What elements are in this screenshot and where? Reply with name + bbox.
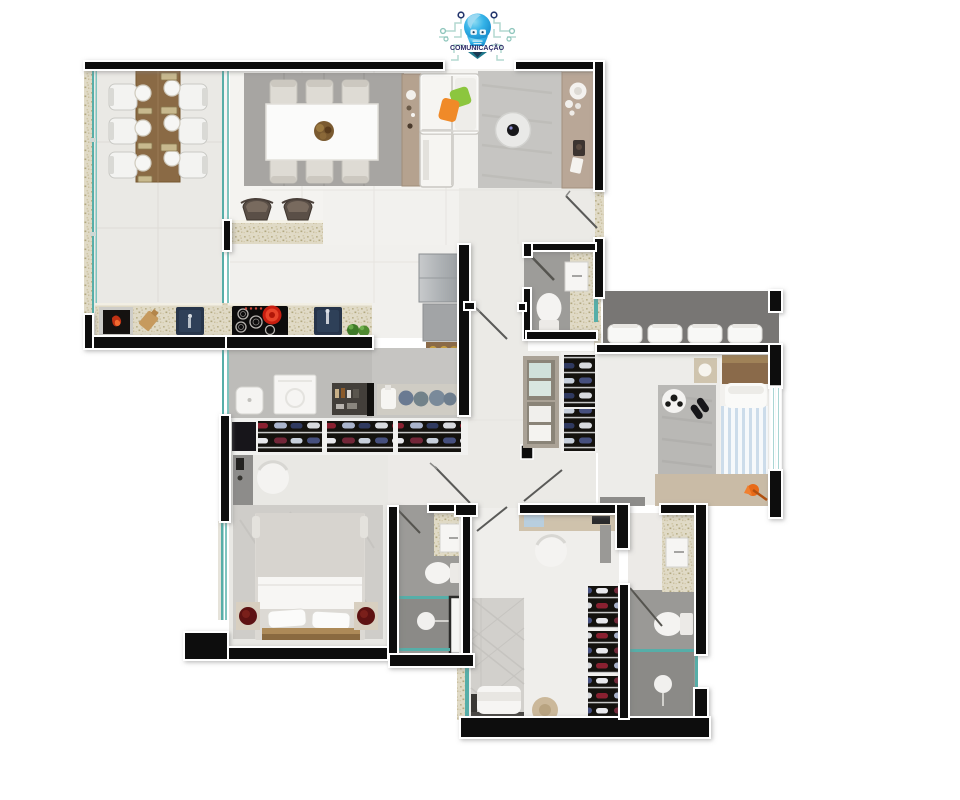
svg-text:COMUNICAÇÃO: COMUNICAÇÃO [450, 43, 505, 52]
